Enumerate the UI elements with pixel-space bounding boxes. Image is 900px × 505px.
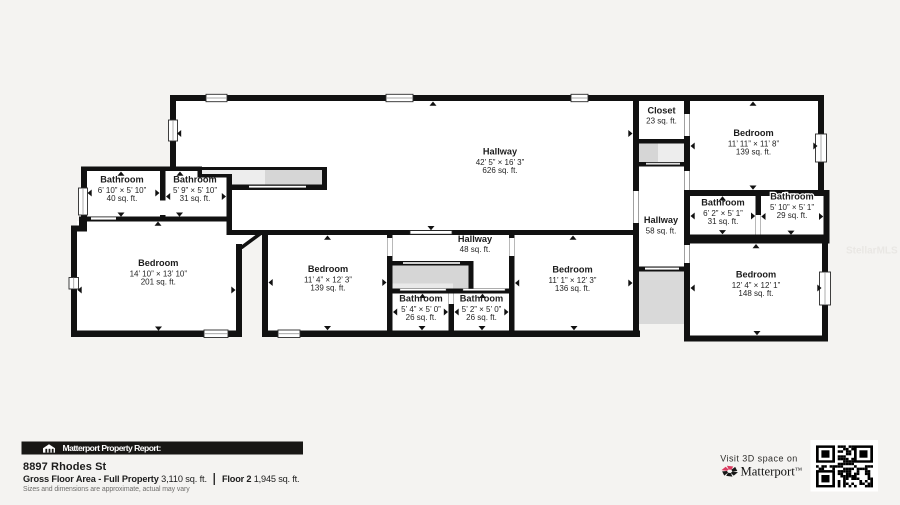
svg-text:Bathroom: Bathroom <box>460 294 503 304</box>
svg-text:Hallway: Hallway <box>458 234 493 244</box>
svg-text:Floor 2 1,945 sq. ft.: Floor 2 1,945 sq. ft. <box>222 474 299 484</box>
svg-text:Bedroom: Bedroom <box>736 269 776 279</box>
svg-text:Matterport Property Report:: Matterport Property Report: <box>63 443 162 453</box>
svg-text:Bathroom: Bathroom <box>173 175 216 185</box>
svg-text:Sizes and dimensions are appro: Sizes and dimensions are approximate, ac… <box>23 486 190 493</box>
svg-text:Hallway: Hallway <box>483 147 518 157</box>
svg-text:8897 Rhodes St: 8897 Rhodes St <box>23 461 107 473</box>
svg-text:Bedroom: Bedroom <box>733 128 773 138</box>
svg-text:136 sq. ft.: 136 sq. ft. <box>555 284 590 293</box>
svg-text:40 sq. ft.: 40 sq. ft. <box>107 194 138 203</box>
svg-text:Bedroom: Bedroom <box>552 265 592 275</box>
svg-text:Bedroom: Bedroom <box>308 264 348 274</box>
svg-text:148 sq. ft.: 148 sq. ft. <box>738 289 773 298</box>
svg-text:626 sq. ft.: 626 sq. ft. <box>482 166 517 175</box>
svg-text:Bathroom: Bathroom <box>701 197 744 207</box>
svg-text:139 sq. ft.: 139 sq. ft. <box>310 284 345 293</box>
svg-text:Hallway: Hallway <box>644 215 679 225</box>
svg-text:201 sq. ft.: 201 sq. ft. <box>141 278 176 287</box>
svg-text:29 sq. ft.: 29 sq. ft. <box>777 211 808 220</box>
svg-text:31 sq. ft.: 31 sq. ft. <box>180 194 211 203</box>
svg-text:Gross Floor Area - Full Proper: Gross Floor Area - Full Property 3,110 s… <box>23 474 207 484</box>
svg-text:48 sq. ft.: 48 sq. ft. <box>460 245 491 254</box>
svg-text:139 sq. ft.: 139 sq. ft. <box>736 148 771 157</box>
svg-text:Bathroom: Bathroom <box>100 175 143 185</box>
svg-text:26 sq. ft.: 26 sq. ft. <box>466 313 497 322</box>
svg-text:Matterport™: Matterport™ <box>741 465 803 479</box>
svg-text:Bathroom: Bathroom <box>399 294 442 304</box>
svg-text:26 sq. ft.: 26 sq. ft. <box>406 313 437 322</box>
svg-text:Closet: Closet <box>647 105 675 115</box>
svg-text:23 sq. ft.: 23 sq. ft. <box>646 117 677 126</box>
svg-text:58 sq. ft.: 58 sq. ft. <box>646 226 677 235</box>
svg-text:Visit 3D space on: Visit 3D space on <box>720 453 798 463</box>
svg-text:31 sq. ft.: 31 sq. ft. <box>708 217 739 226</box>
svg-text:Bathroom: Bathroom <box>770 191 813 201</box>
svg-text:StellarMLS: StellarMLS <box>846 246 898 257</box>
svg-text:Bedroom: Bedroom <box>138 258 178 268</box>
